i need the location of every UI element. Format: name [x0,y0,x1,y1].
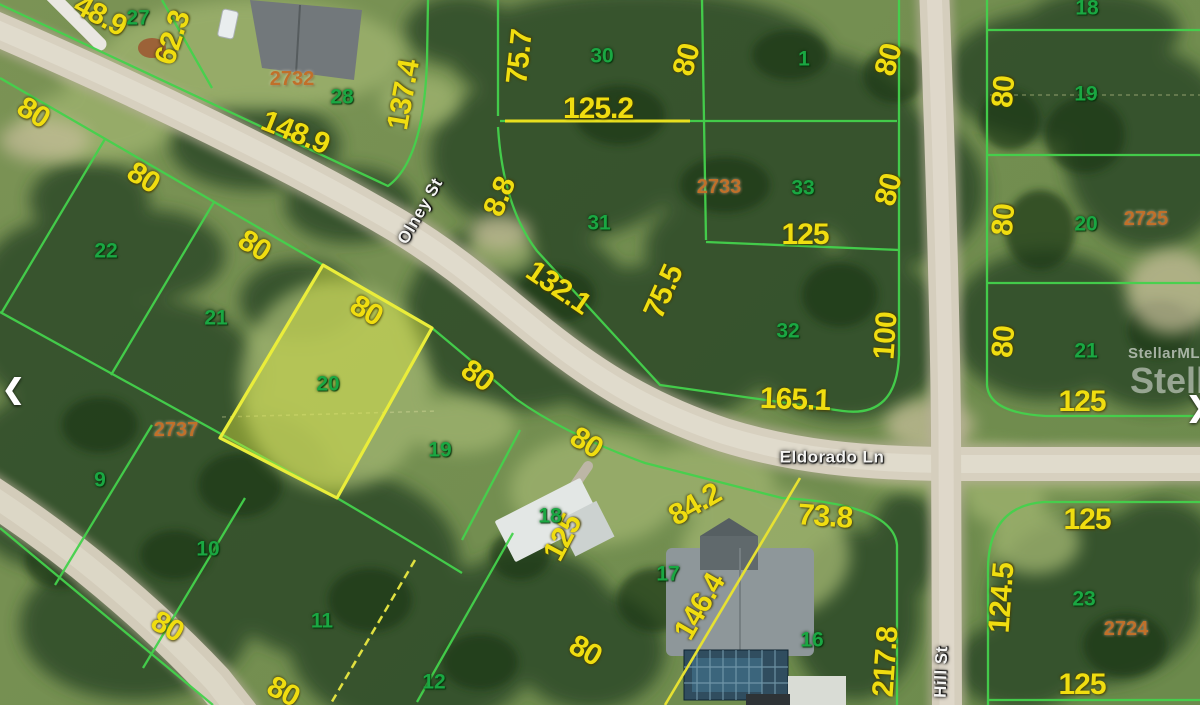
lot-number-label: 23 [1072,589,1095,610]
lot-number-label: 28 [330,87,353,108]
carousel-next-arrow[interactable]: ❯ [1186,392,1200,423]
dimension-label: 217.8 [869,626,904,698]
lot-number-label: 18 [538,506,561,527]
street-name-label: Eldorado Ln [780,449,885,466]
dimension-label: 124.5 [985,562,1020,634]
aerial-parcel-map: 48.962.3148.9137.4808075.78080125.28.880… [0,0,1200,705]
dimension-label: 125 [781,220,828,250]
lot-number-label: 33 [791,178,814,199]
pool-enclosure [684,650,788,700]
lot-number-label: 18 [1075,0,1098,19]
lot-number-label: 16 [800,630,823,651]
carousel-prev-arrow[interactable]: ❮ [2,374,25,405]
dimension-label: 80 [988,75,1021,109]
lot-number-label: 30 [590,46,613,67]
block-number-label: 2732 [270,69,315,89]
dimension-label: 80 [988,325,1021,359]
dimension-label: 125 [1063,505,1110,535]
lot-number-label: 10 [196,539,219,560]
dimension-label: 80 [988,203,1021,237]
lot-number-label: 21 [204,308,227,329]
dimension-label: 165.1 [759,384,830,416]
lot-number-label: 12 [422,672,445,693]
block-number-label: 2737 [154,420,199,440]
lot-number-label: 19 [428,440,451,461]
lot-number-label: 1 [798,49,810,70]
lot-number-label: 27 [126,8,149,29]
lot-number-label: 21 [1074,341,1097,362]
lot-number-label: 9 [94,470,106,491]
lot-number-label: 20 [316,374,339,395]
dimension-label: 100 [869,311,902,360]
pool-deck [788,676,846,705]
dimension-label: 75.7 [502,28,538,85]
dimension-label: 125.2 [563,94,633,124]
block-number-label: 2733 [697,177,742,197]
dimension-label: 125 [1058,670,1105,700]
lot-number-label: 31 [587,213,610,234]
dimension-label: 125 [1058,387,1105,417]
lot-number-label: 11 [311,611,333,632]
lot-number-label: 20 [1074,214,1097,235]
dimension-label: 73.8 [797,500,853,534]
lot-number-label: 22 [94,241,117,262]
block-number-label: 2725 [1124,209,1169,229]
street-name-label: Hill St [932,646,951,698]
lot-number-label: 19 [1074,84,1097,105]
lot-number-label: 32 [776,321,799,342]
lot-number-label: 17 [656,564,679,585]
block-number-label: 2724 [1104,619,1149,639]
